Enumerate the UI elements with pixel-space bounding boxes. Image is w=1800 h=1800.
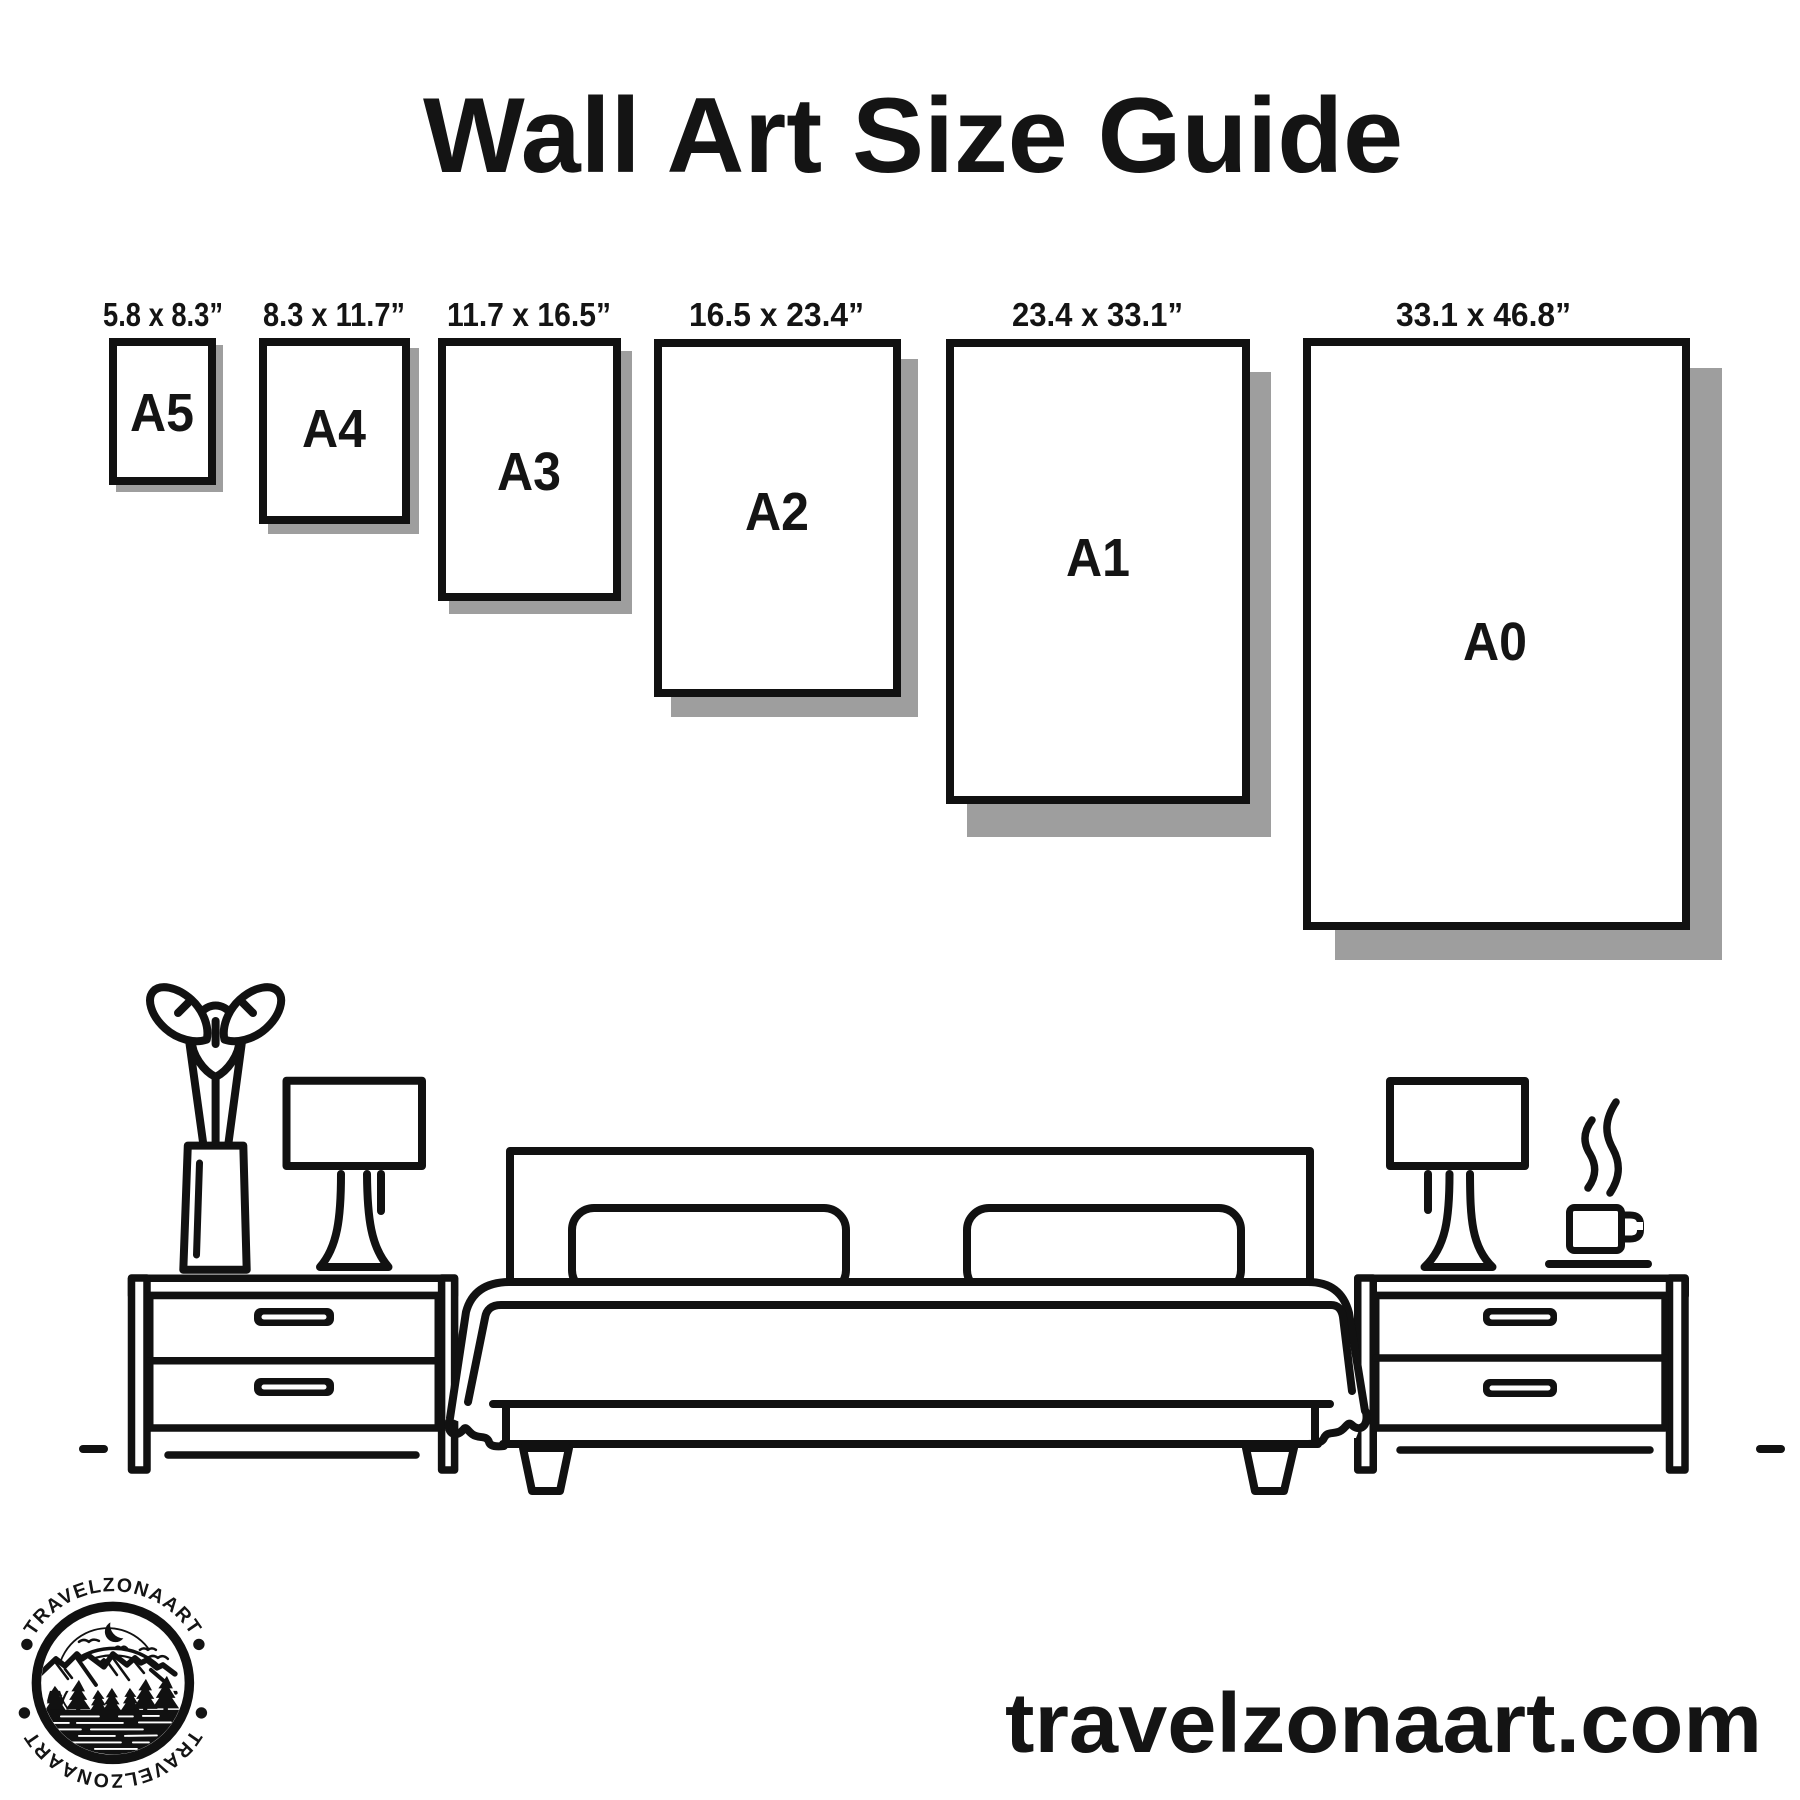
svg-text:A0: A0	[1463, 612, 1527, 672]
svg-text:8.3 x 11.7”: 8.3 x 11.7”	[263, 296, 405, 333]
svg-text:5.8 x 8.3”: 5.8 x 8.3”	[103, 296, 223, 333]
svg-text:travelzonaart.com: travelzonaart.com	[1005, 1676, 1762, 1770]
svg-text:A2: A2	[745, 482, 809, 542]
svg-text:11.7 x 16.5”: 11.7 x 16.5”	[447, 296, 611, 333]
svg-text:33.1 x 46.8”: 33.1 x 46.8”	[1396, 296, 1571, 333]
svg-text:16.5 x 23.4”: 16.5 x 23.4”	[689, 296, 864, 333]
svg-text:A3: A3	[497, 442, 561, 502]
svg-text:A4: A4	[302, 399, 366, 459]
svg-text:23.4 x 33.1”: 23.4 x 33.1”	[1012, 296, 1183, 333]
svg-text:A1: A1	[1066, 528, 1130, 588]
svg-text:A5: A5	[130, 383, 194, 443]
svg-text:Wall Art Size Guide: Wall Art Size Guide	[423, 75, 1403, 195]
